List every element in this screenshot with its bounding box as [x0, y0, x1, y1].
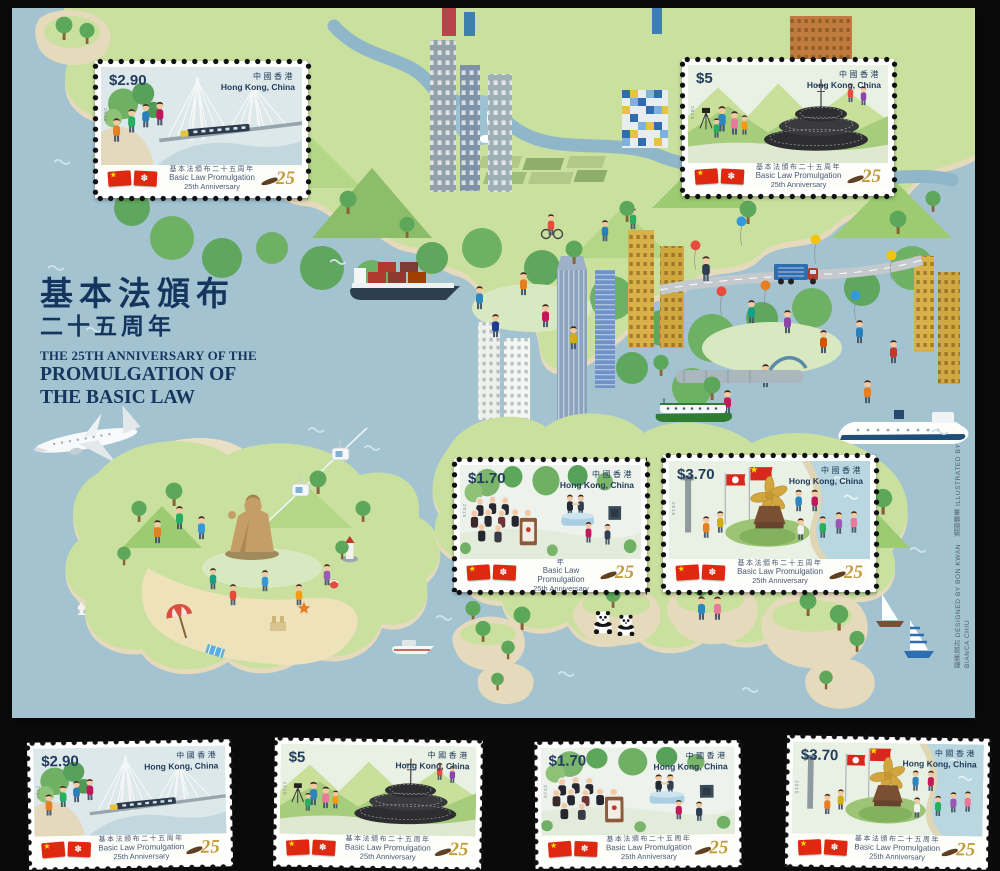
25th-anniversary-emblem: 25: [700, 838, 728, 857]
stamp-year: 2015: [282, 781, 287, 795]
stamp-caption-text: 基本法頒布二十五周年 Basic Law Promulgation 25th A…: [852, 835, 942, 862]
stamp-caption: 基本法頒布二十五周年 Basic Law Promulgation 25th A…: [688, 163, 888, 190]
stamp-country: 中國香港 Hong Kong, China: [653, 751, 727, 772]
hongkong-flag-icon: [702, 564, 726, 580]
title-chinese-line2: 二十五周年: [40, 312, 270, 342]
stamp-caption: 基本法頒布二十五周年 Basic Law Promulgation 25th A…: [35, 833, 227, 863]
stamp-caption-text: 基本法頒布二十五周年 Basic Law Promulgation 25th A…: [96, 835, 187, 862]
stamp-year: 2015: [36, 786, 41, 800]
stamp-year: 2015: [671, 502, 676, 516]
stamp-value: $3.70: [677, 466, 715, 483]
perforation: [227, 739, 236, 866]
stamp-year: 2015: [794, 780, 799, 794]
stamp-year: 2015: [103, 108, 108, 122]
panda-icon: [594, 611, 612, 634]
sheet-stamp-290: $2.90 中國香港 Hong Kong, China 2015 基本法頒布二十…: [95, 61, 308, 198]
souvenir-sheet: 基本法頒布 二十五周年 THE 25TH ANNIVERSARY OF THE …: [12, 8, 975, 718]
25th-anniversary-emblem: 25: [440, 840, 468, 859]
stamp-caption-text: 基本法頒布二十五周年 Basic Law Promulgation 25th A…: [340, 835, 435, 861]
stamp-caption-text: 基本法頒布二十五周年 Basic Law Promulgation 25th A…: [602, 835, 695, 861]
stamp-scene-rail-bridge: $2.90 中國香港 Hong Kong, China 2015: [101, 67, 302, 165]
perforation: [534, 737, 740, 746]
stamp-value: $1.70: [549, 752, 587, 769]
stamp-value: $5: [696, 70, 713, 87]
stamp-year: 2015: [543, 785, 548, 799]
stamp-scene-bauhinia: $3.70 中國香港 Hong Kong, China 2015: [791, 741, 984, 836]
china-flag-icon: [798, 839, 822, 855]
25th-anniversary-emblem: 25: [947, 840, 975, 859]
stamp-caption: 基本法頒布二十五周年 Basic Law Promulgation 25th A…: [460, 559, 641, 586]
25th-anniversary-emblem: 25: [606, 563, 634, 582]
china-flag-icon: [695, 168, 719, 185]
stamp-scene-observatory: $5 中國香港 Hong Kong, China 2015: [688, 65, 888, 163]
stamp-caption-text: 基本法頒布二十五周年 Basic Law Promulgation 25th A…: [749, 164, 848, 189]
perforation: [478, 740, 487, 869]
stamp-scene-rail-bridge: $2.90 中國香港 Hong Kong, China 2015: [33, 745, 227, 836]
flags: [676, 565, 725, 580]
perforation: [275, 734, 483, 744]
perforation: [781, 735, 790, 866]
stamp-value: $1.70: [468, 470, 506, 487]
perforation: [787, 732, 990, 743]
flags: [42, 842, 91, 858]
perforation: [737, 740, 745, 867]
sheet-title: 基本法頒布 二十五周年 THE 25TH ANNIVERSARY OF THE …: [40, 276, 270, 409]
stamp-caption: 基本法頒布二十五周年 Basic Law Promulgation 25th A…: [669, 559, 870, 586]
25th-anniversary-emblem: 25: [192, 837, 220, 856]
china-flag-icon: [286, 839, 310, 855]
stamp-caption: 基本法頒布二十五周年 Basic Law Promulgation 25th A…: [541, 834, 735, 863]
panda-icon: [618, 615, 635, 637]
perforation: [531, 742, 539, 869]
flags: [467, 565, 516, 580]
stamp-sheet-photo: 基本法頒布 二十五周年 THE 25TH ANNIVERSARY OF THE …: [0, 0, 1000, 871]
title-english-line2: PROMULGATION OF: [40, 364, 270, 386]
stamp-scene-bauhinia: $3.70 中國香港 Hong Kong, China 2015: [669, 461, 870, 559]
sheet-stamp-170: $1.70 中國香港 Hong Kong, China 2015 基本法頒布二十…: [454, 459, 647, 592]
stamp-value: $2.90: [41, 753, 79, 771]
single-stamp-170: $1.70 中國香港 Hong Kong, China 2015 基本法頒布二十…: [534, 740, 741, 869]
flags: [286, 840, 335, 856]
title-chinese-line1: 基本法頒布: [40, 276, 270, 312]
china-flag-icon: [548, 841, 572, 858]
hongkong-flag-icon: [68, 841, 92, 857]
hongkong-flag-icon: [134, 170, 158, 186]
mosaic-building: [622, 90, 668, 148]
hongkong-flag-icon: [312, 840, 336, 856]
stamp-caption: 基本法頒布二十五周年 Basic Law Promulgation 25th A…: [101, 165, 302, 192]
stamp-value: $2.90: [109, 72, 147, 89]
stamp-caption-text: 基本法頒布二十五周年 Basic Law Promulgation 25th A…: [730, 560, 830, 585]
stamp-year: 2015: [462, 504, 467, 518]
25th-anniversary-emblem: 25: [267, 169, 295, 188]
25th-anniversary-emblem: 25: [835, 563, 863, 582]
single-stamp-290: $2.90 中國香港 Hong Kong, China 2015 基本法頒布二十…: [27, 739, 233, 870]
perforation: [270, 738, 279, 867]
china-flag-icon: [108, 170, 132, 187]
single-stamp-370: $3.70 中國香港 Hong Kong, China 2015 基本法頒布二十…: [785, 735, 990, 870]
perforation: [984, 739, 993, 870]
stamp-value: $5: [289, 749, 306, 766]
stamp-country: 中國香港 Hong Kong, China: [560, 470, 634, 491]
title-english-line1: THE 25TH ANNIVERSARY OF THE: [40, 348, 270, 364]
stamp-caption: 基本法頒布二十五周年 Basic Law Promulgation 25th A…: [791, 833, 982, 863]
title-english-line3: THE BASIC LAW: [40, 387, 270, 409]
stamp-country: 中國香港 Hong Kong, China: [807, 70, 881, 91]
stamp-country: 中國香港 Hong Kong, China: [789, 466, 863, 487]
stamp-scene-observatory: $5 中國香港 Hong Kong, China 2015: [280, 744, 477, 837]
china-flag-icon: [467, 564, 491, 581]
perforation: [23, 743, 32, 870]
stamp-country: 中國香港 Hong Kong, China: [902, 748, 976, 770]
flags: [108, 171, 157, 186]
stamp-scene-judiciary: $1.70 中國香港 Hong Kong, China 2015: [460, 465, 641, 559]
flags: [798, 839, 847, 855]
stamp-caption: 基本法頒布二十五周年 Basic Law Promulgation 25th A…: [279, 834, 475, 864]
hongkong-flag-icon: [574, 841, 598, 857]
perforation: [785, 863, 988, 871]
hongkong-flag-icon: [824, 839, 848, 856]
perforation: [536, 864, 742, 871]
china-flag-icon: [676, 564, 700, 581]
stamp-scene-judiciary: $1.70 中國香港 Hong Kong, China 2015: [541, 746, 736, 836]
stamp-country: 中國香港 Hong Kong, China: [395, 750, 469, 772]
sheet-stamp-5: $5 中國香港 Hong Kong, China 2015 基本法頒布二十五周年…: [682, 59, 894, 196]
stamp-value: $3.70: [801, 746, 839, 764]
perforation: [27, 736, 231, 747]
stamp-caption-text: 基本法頒布二十五周年 Basic Law Promulgation 25th A…: [162, 166, 262, 191]
stamp-country: 中國香港 Hong Kong, China: [221, 72, 295, 93]
flags: [695, 169, 744, 184]
perforation: [273, 863, 481, 871]
stamp-year: 2015: [690, 106, 695, 120]
sheet-stamp-370: $3.70 中國香港 Hong Kong, China 2015 基本法頒布二十…: [663, 455, 876, 592]
hongkong-flag-icon: [493, 564, 517, 580]
designer-credit: 郵票設計 DESIGNED BY BON KWAN 插圖繪畫 ILLUSTRAT…: [954, 433, 971, 668]
single-stamp-5: $5 中國香港 Hong Kong, China 2015 基本法頒布二十五周年…: [273, 738, 483, 870]
perforation: [29, 863, 233, 871]
25th-anniversary-emblem: 25: [853, 167, 881, 186]
hongkong-flag-icon: [721, 168, 745, 184]
stamp-country: 中國香港 Hong Kong, China: [144, 750, 218, 772]
flags: [548, 841, 597, 856]
china-flag-icon: [41, 841, 65, 858]
